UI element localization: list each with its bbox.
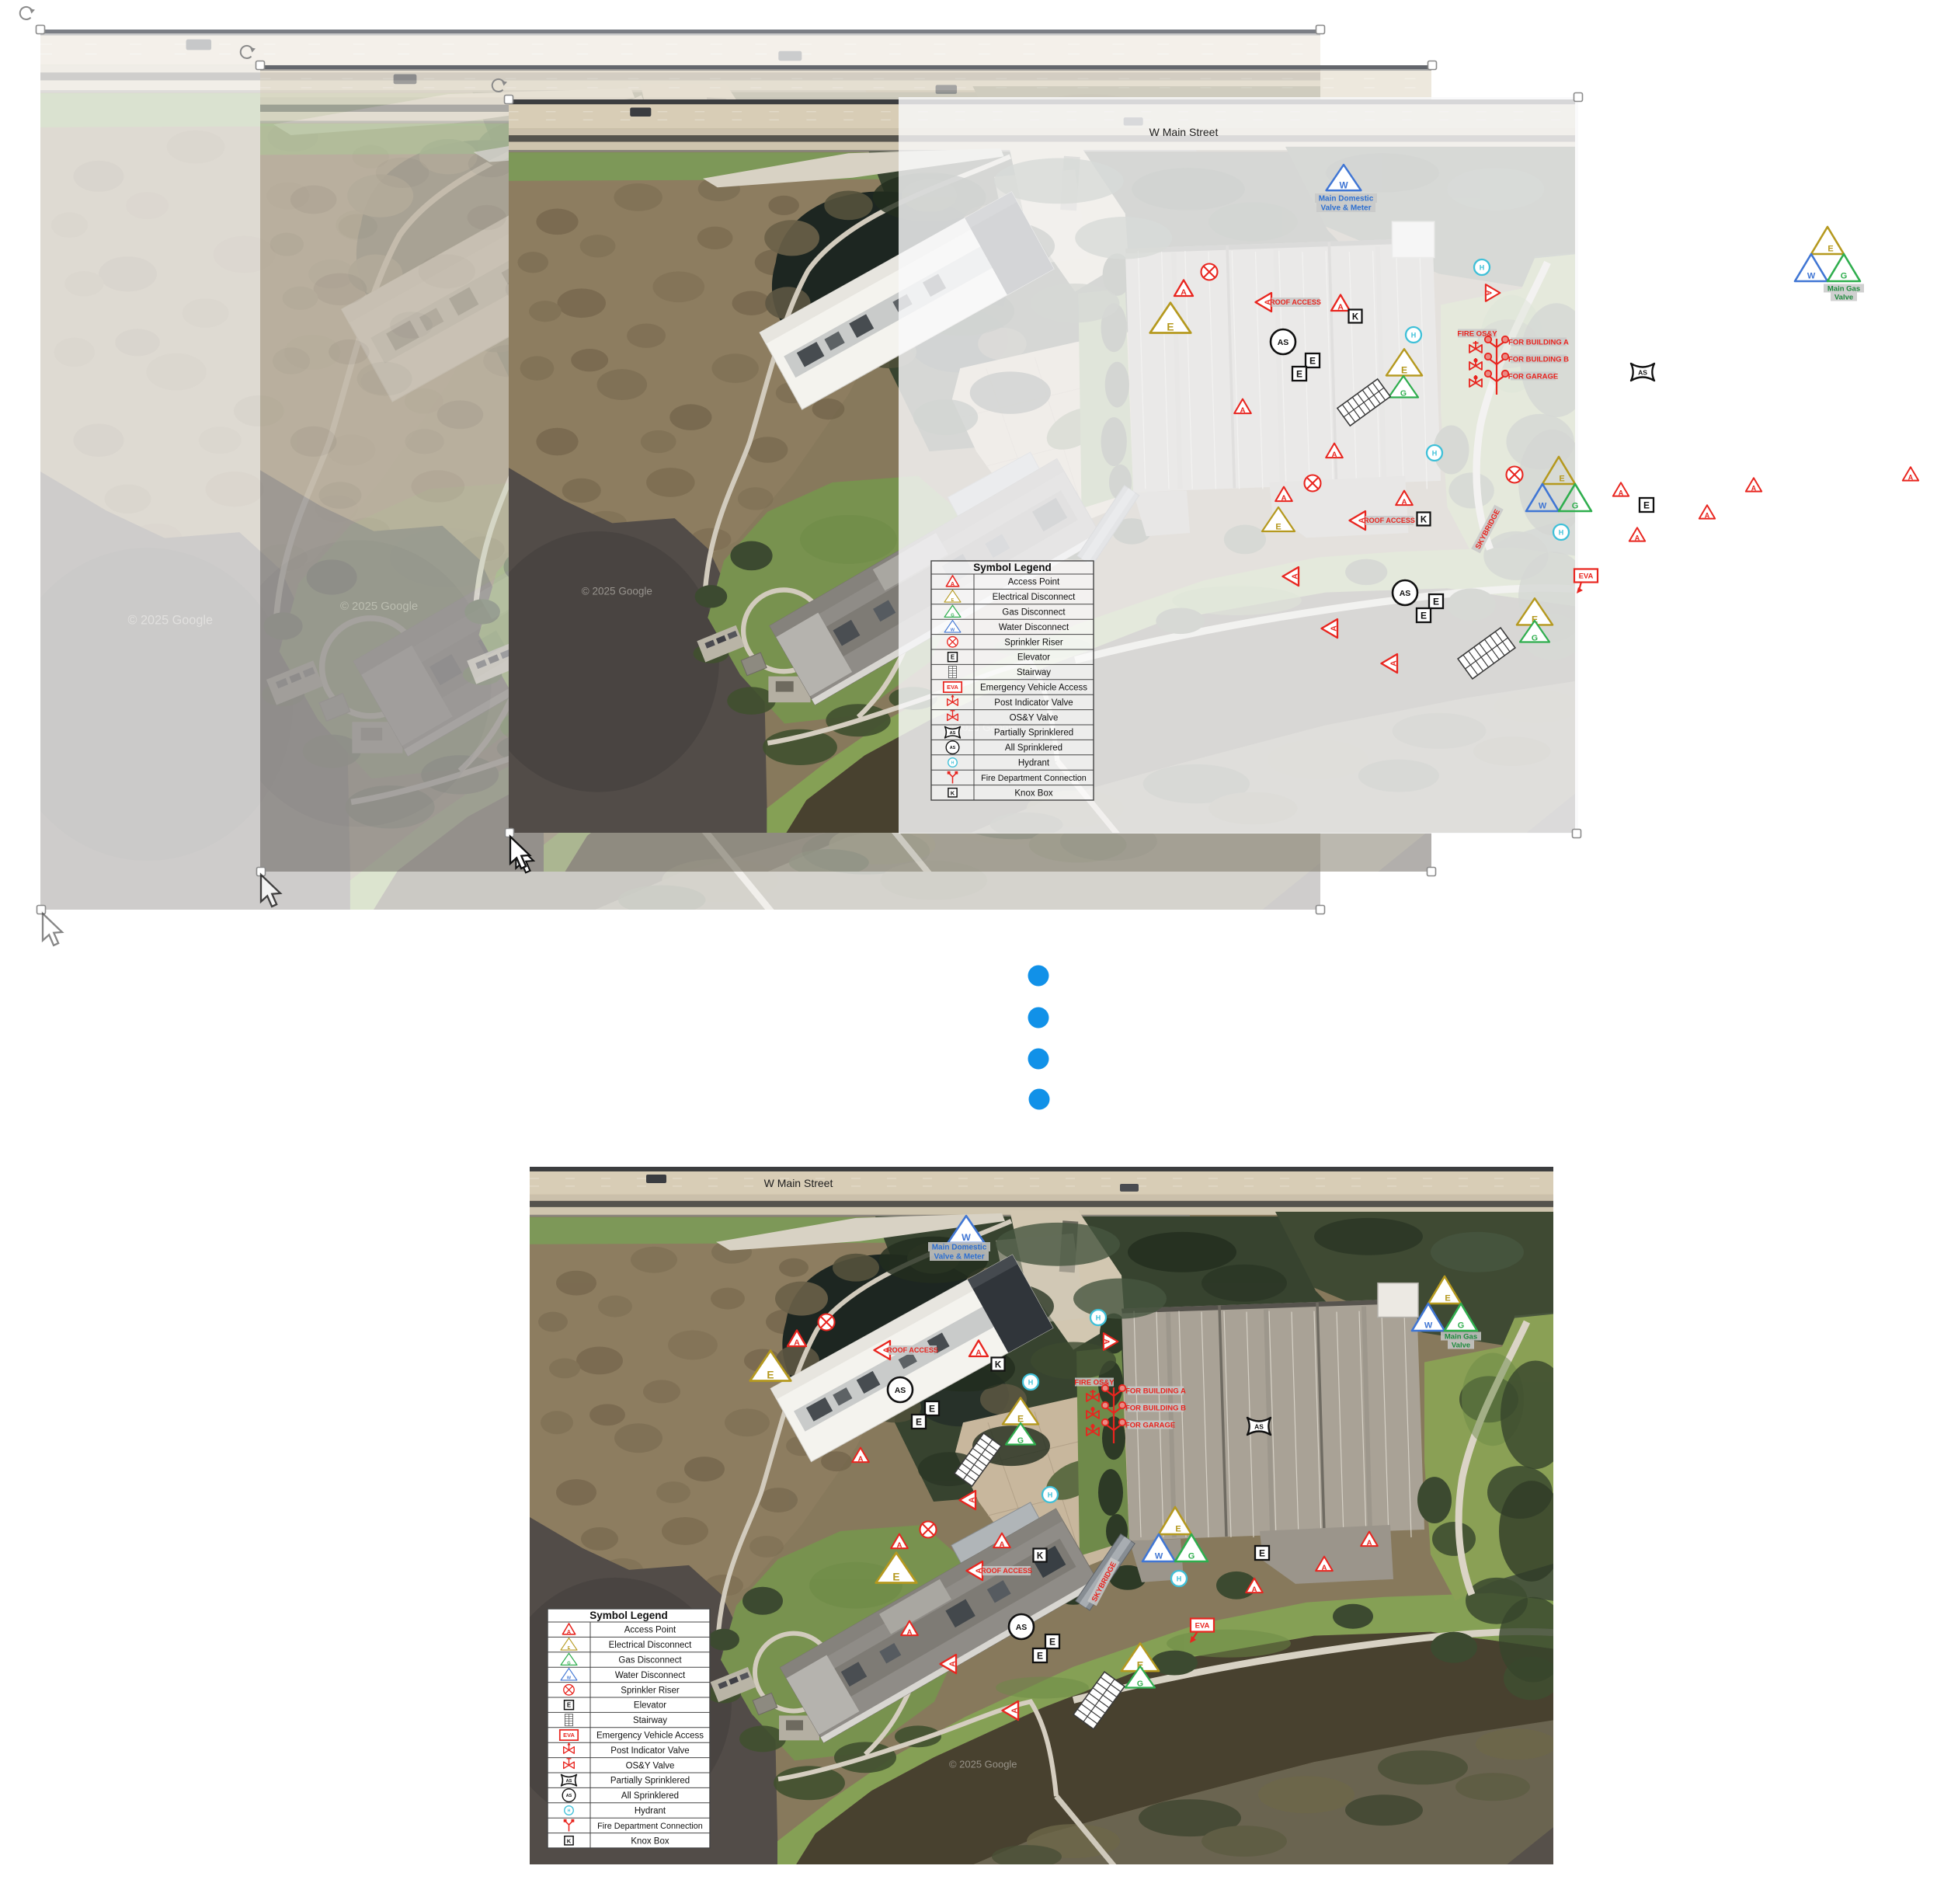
svg-text:FIRE OS&Y: FIRE OS&Y — [1457, 329, 1497, 338]
svg-text:ROOF ACCESS: ROOF ACCESS — [1270, 298, 1321, 306]
svg-text:FOR BUILDING B: FOR BUILDING B — [1508, 355, 1569, 364]
svg-text:FOR GARAGE: FOR GARAGE — [1508, 372, 1558, 381]
svg-text:W Main Street: W Main Street — [1149, 126, 1219, 138]
svg-text:Valve & Meter: Valve & Meter — [1320, 204, 1371, 213]
svg-text:ROOF ACCESS: ROOF ACCESS — [1364, 517, 1415, 524]
svg-text:Main Domestic: Main Domestic — [1319, 195, 1374, 204]
svg-text:Valve: Valve — [1834, 293, 1853, 301]
svg-text:Main Gas: Main Gas — [1827, 284, 1860, 293]
svg-text:FOR BUILDING A: FOR BUILDING A — [1508, 338, 1569, 346]
